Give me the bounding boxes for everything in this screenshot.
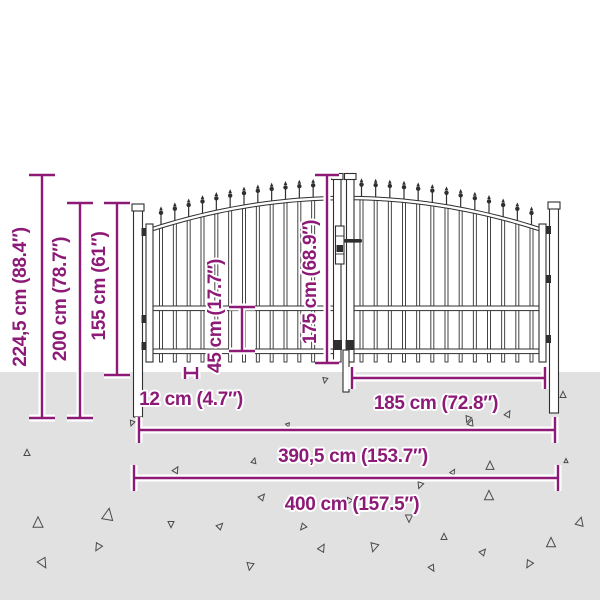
rail [354,349,539,354]
product-dimension-diagram: 224,5 cm (88.4″) 200 cm (78.7″) 155 cm (… [0,0,600,600]
spear-tip-icon [201,195,205,199]
right-door [345,174,547,363]
gate-bar [516,222,519,362]
handle-icon [344,239,362,243]
spear-ball-icon [416,187,420,191]
hinge-icon [546,226,551,234]
spear-ball-icon [529,211,533,215]
spear-ball-icon [444,191,448,195]
spear-ball-icon [159,211,163,215]
gate-bar [374,199,377,362]
spear-ball-icon [283,185,287,189]
gate-bar [459,209,462,362]
dim-lower-section [229,307,255,351]
spear-ball-icon [297,184,301,188]
spear-tip-icon [311,179,315,183]
spear-tip-icon [473,192,477,196]
dim-label-door-width: 185 cm (72.8″) [374,393,498,415]
spear-tip-icon [159,206,163,210]
rail [354,306,539,311]
gate-bar [201,215,204,362]
hinge-icon [546,335,551,343]
gate-bar [187,219,190,362]
spear-tip-icon [270,183,274,187]
spear-tip-icon [298,180,302,184]
gate-bar [403,201,406,362]
spear-ball-icon [388,184,392,188]
dim-label-fence-height: 155 cm (61″) [89,231,111,340]
spear-ball-icon [458,193,462,197]
outer-stile [539,224,546,362]
gate-bar [488,215,491,362]
dim-label-inner-width: 390,5 cm (153.7″) [278,446,428,468]
spear-tip-icon [402,181,406,185]
gate-bar [160,226,163,362]
gate-bar [431,204,434,362]
gate-bar [256,204,259,362]
spear-ball-icon [173,207,177,211]
spear-tip-icon [242,187,246,191]
hinge-icon [142,315,147,323]
gate-bar [284,201,287,362]
hinge-icon [142,228,147,236]
gate-bar [445,206,448,362]
ground [0,372,600,600]
dim-label-total-width: 400 cm (157.5″) [285,494,420,516]
spear-ball-icon [214,196,218,200]
spear-tip-icon [416,182,420,186]
gate-bar [417,202,420,362]
spear-tip-icon [388,180,392,184]
spear-ball-icon [359,182,363,186]
spear-tip-icon [530,207,534,211]
spear-ball-icon [256,189,260,193]
gate-bar [388,200,391,362]
spear-ball-icon [430,188,434,192]
spear-ball-icon [373,183,377,187]
gate-bar [173,222,176,362]
spear-tip-icon [516,202,520,206]
gate-bar [270,203,273,362]
dim-label-total-height: 224,5 cm (88.4″) [10,227,32,367]
spear-ball-icon [487,199,491,203]
spear-tip-icon [459,189,463,193]
spear-ball-icon [501,203,505,207]
spear-tip-icon [256,184,260,188]
spear-tip-icon [228,189,232,193]
spear-ball-icon [186,203,190,207]
spear-tip-icon [445,186,449,190]
gate-bar [473,212,476,362]
spear-tip-icon [360,178,364,182]
dim-label-bar-spacing: 12 cm (4.7″) [139,389,243,411]
spear-tip-icon [284,181,288,185]
spear-tip-icon [431,184,435,188]
spear-tip-icon [501,199,505,203]
spear-tip-icon [187,199,191,203]
outer-stile [146,224,153,362]
center-stile [334,177,342,362]
spear-tip-icon [173,202,177,206]
center-stile [347,177,355,362]
spear-tip-icon [215,192,219,196]
spear-ball-icon [402,185,406,189]
dim-label-post-height: 200 cm (78.7″) [50,237,72,361]
spear-ball-icon [200,199,204,203]
dim-label-lower-section: 45 cm (17.7″) [205,259,227,373]
gate-bar [360,198,363,362]
spear-ball-icon [228,193,232,197]
spear-ball-icon [311,183,315,187]
dim-label-door-height: 175 cm (68.9″) [300,220,322,344]
spear-ball-icon [242,191,246,195]
hinge-icon [546,275,551,283]
spear-ball-icon [473,196,477,200]
gate-bar [530,227,533,362]
spear-ball-icon [515,207,519,211]
gate-bar [229,209,232,362]
spear-ball-icon [269,187,273,191]
gate-bar [502,219,505,362]
spear-tip-icon [374,179,378,183]
spear-tip-icon [487,195,491,199]
hinge-icon [142,342,147,350]
